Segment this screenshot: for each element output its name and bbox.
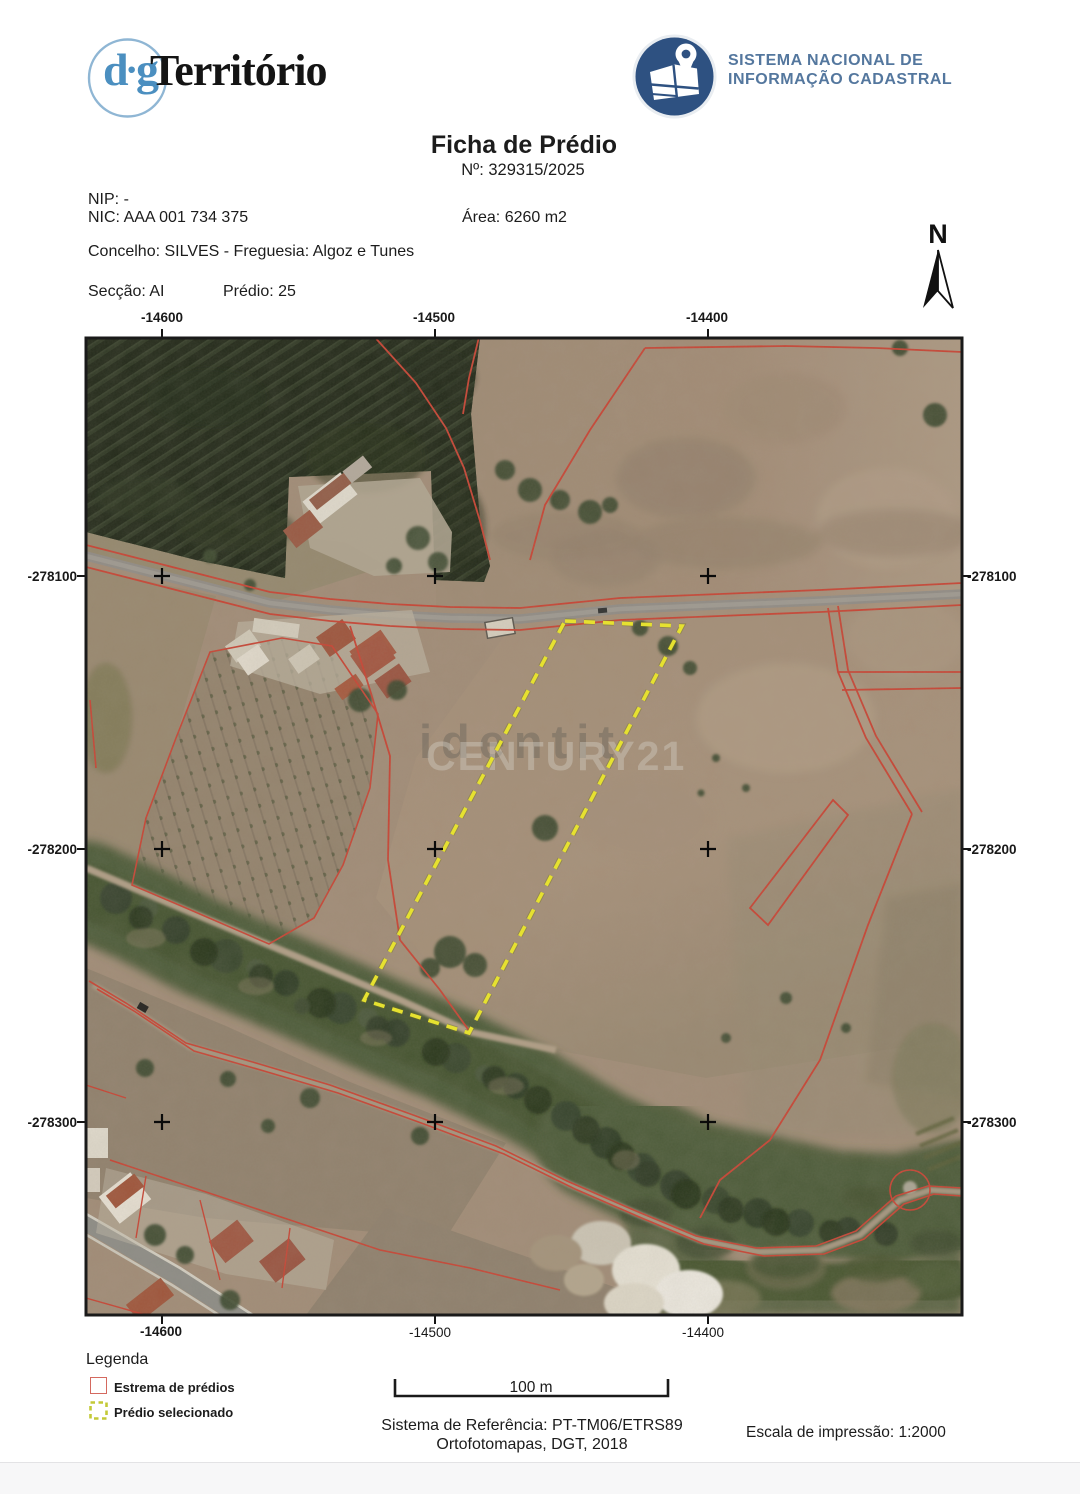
svg-text:CENTURY21: CENTURY21 [426, 733, 686, 779]
svg-text:100 m: 100 m [509, 1379, 552, 1396]
svg-text:-278200: -278200 [27, 842, 77, 857]
svg-text:Território: Território [150, 46, 327, 95]
svg-text:-14600: -14600 [140, 1324, 182, 1339]
svg-text:-278200: -278200 [967, 842, 1017, 857]
svg-text:-278100: -278100 [27, 569, 77, 584]
svg-text:N: N [928, 219, 948, 249]
svg-text:-14600: -14600 [141, 310, 183, 325]
svg-text:-14500: -14500 [413, 310, 455, 325]
svg-text:-278300: -278300 [27, 1115, 77, 1130]
svg-text:-14400: -14400 [686, 310, 728, 325]
svg-text:-278300: -278300 [967, 1115, 1017, 1130]
svg-text:-14500: -14500 [409, 1325, 451, 1340]
svg-text:-278100: -278100 [967, 569, 1017, 584]
svg-text:-14400: -14400 [682, 1325, 724, 1340]
